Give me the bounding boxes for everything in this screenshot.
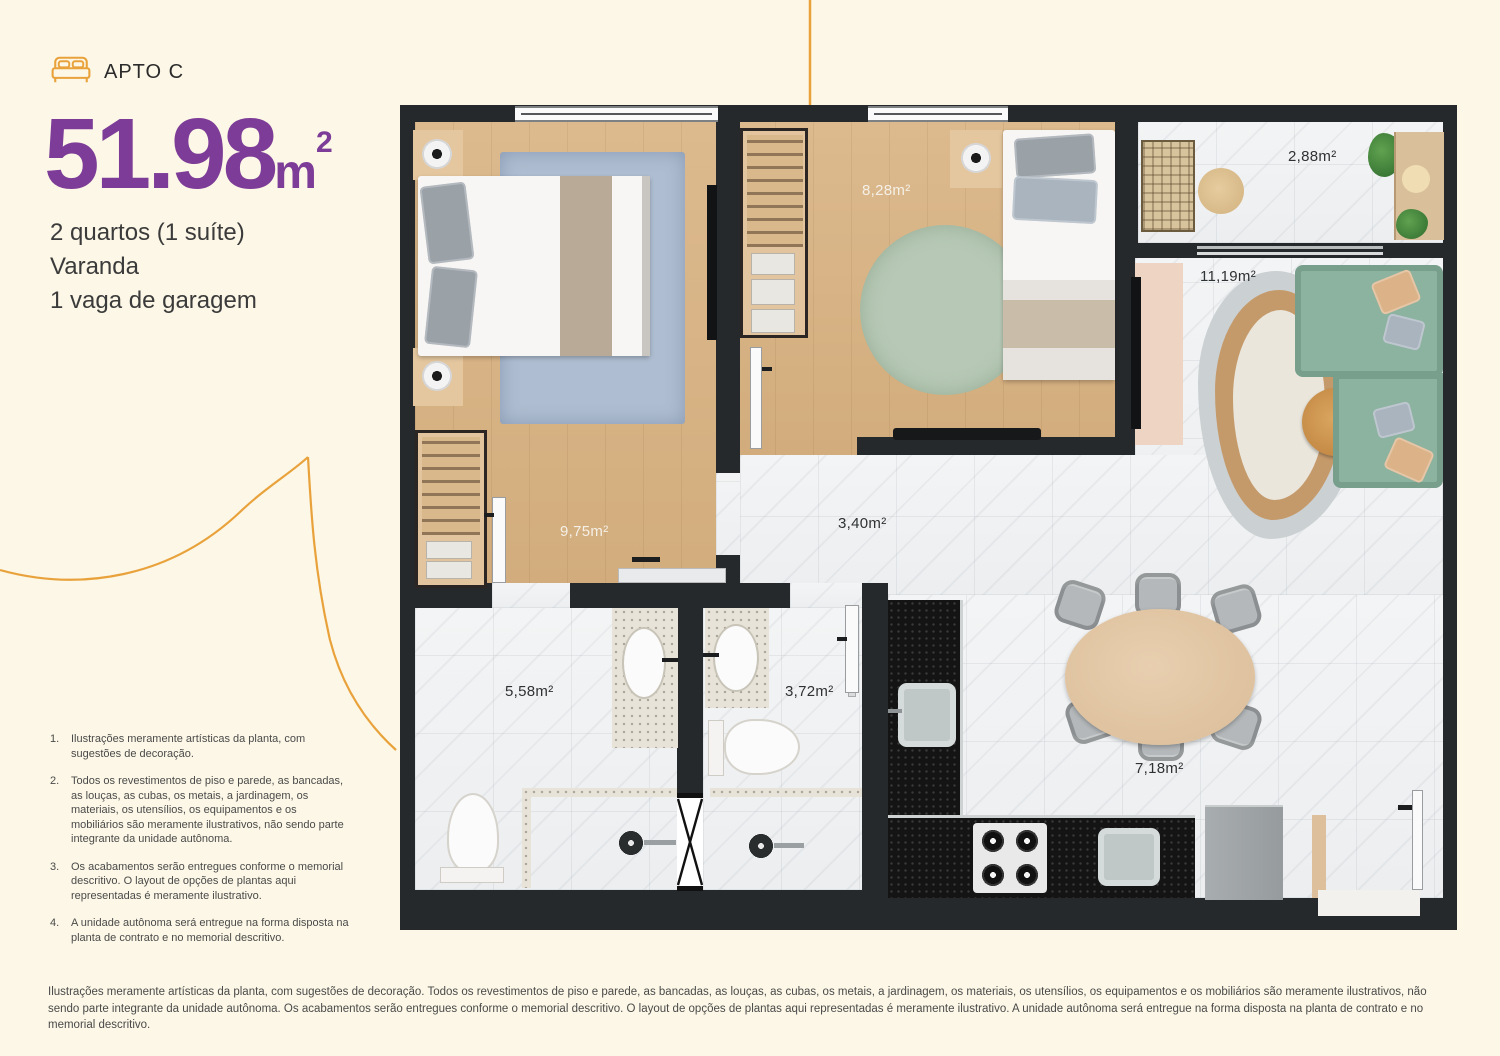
burner: [1015, 829, 1039, 853]
shower-arm: [774, 843, 804, 848]
wall-between-baths: [677, 583, 703, 793]
feature-list: 2 quartos (1 suíte) Varanda 1 vaga de ga…: [50, 216, 257, 318]
burner: [981, 829, 1005, 853]
footnote-item: 2. Todos os revestimentos de piso e pare…: [50, 774, 350, 847]
feature-balcony: Varanda: [50, 250, 257, 284]
cabinet-strip: [1312, 815, 1326, 898]
ventilation-shaft: [677, 793, 703, 891]
table-bowl: [1402, 165, 1430, 193]
bedroom2-closet: [740, 128, 808, 338]
shower-border: [710, 788, 862, 797]
folded-linen: [426, 561, 472, 579]
apartment-header: APTO C: [50, 54, 184, 91]
sliding-door-track: [1197, 246, 1383, 249]
lamp: [960, 142, 992, 174]
faucet: [888, 709, 902, 713]
cooktop: [973, 823, 1047, 893]
suite-nightstand: [413, 348, 463, 406]
suite-nightstand: [413, 130, 463, 180]
legal-disclaimer: Ilustrações meramente artísticas da plan…: [48, 984, 1458, 1034]
pillow: [419, 181, 474, 264]
room-label-bath2: 3,72m²: [785, 683, 834, 700]
wall-balcony-left: [1135, 243, 1197, 258]
bedroom2-door: [750, 347, 762, 449]
room-label-hall: 3,40m²: [838, 515, 887, 532]
footnote-item: 1. Ilustrações meramente artísticas da p…: [50, 732, 350, 761]
fridge: [1205, 805, 1283, 900]
folded-linen: [751, 279, 795, 305]
folded-linen: [751, 253, 795, 275]
footnote-item: 4. A unidade autônoma será entregue na f…: [50, 916, 350, 945]
lamp: [421, 360, 453, 392]
bath-suite-sink: [622, 627, 666, 699]
living-tv: [1131, 277, 1141, 429]
bed-runner: [560, 176, 612, 356]
hanging-clothes: [422, 437, 480, 535]
room-label-balcony: 2,88m²: [1288, 148, 1337, 165]
wall-balcony-right: [1383, 243, 1443, 258]
shower-arm: [644, 840, 676, 845]
area-headline: 51.98m2: [44, 104, 333, 204]
bath2-sink: [713, 624, 759, 692]
burner: [1015, 863, 1039, 887]
lamp: [421, 138, 453, 170]
burner: [981, 863, 1005, 887]
kitchen-sink-2: [1098, 828, 1160, 886]
toilet: [447, 793, 499, 873]
suite-bed: [418, 176, 650, 356]
suite-wardrobe: [415, 430, 487, 588]
kitchen-sink: [898, 683, 956, 747]
bedroom2-bed: [1003, 130, 1115, 380]
suite-window: [515, 106, 718, 122]
area-unit: m: [274, 146, 316, 199]
bedroom2-tv: [893, 428, 1041, 440]
dining-table: [1065, 609, 1255, 745]
bath-suite-door-threshold: [492, 583, 570, 608]
footnote-list: 1. Ilustrações meramente artísticas da p…: [50, 732, 350, 958]
door-handle: [837, 637, 847, 641]
balcony-pouf: [1198, 168, 1244, 214]
suite-vanity-counter: [618, 568, 726, 583]
shower-head: [748, 833, 774, 859]
toilet-tank: [440, 867, 504, 883]
tv-console: [1135, 263, 1183, 445]
bed-runner: [1003, 300, 1115, 348]
bed-icon: [50, 54, 92, 91]
bath2-door: [845, 605, 859, 693]
faucet: [632, 557, 660, 562]
pillow: [1012, 176, 1098, 224]
bath-suite-door: [492, 497, 506, 583]
floorplan-page: APTO C 51.98m2 2 quartos (1 suíte) Varan…: [0, 0, 1500, 1056]
suite-tv: [707, 185, 717, 340]
suite-door-threshold: [716, 473, 740, 560]
room-label-kitchen: 7,18m²: [1135, 760, 1184, 777]
faucet: [703, 653, 719, 657]
floor-plan: 9,75m² 8,28m² 2,88m²: [400, 105, 1457, 930]
room-label-bath-suite: 5,58m²: [505, 683, 554, 700]
room-label-living: 11,19m²: [1200, 268, 1256, 285]
room-label-suite: 9,75m²: [560, 523, 609, 540]
entrance-door: [1412, 790, 1423, 890]
room-label-bedroom2: 8,28m²: [862, 182, 911, 199]
wall-bath2-kitchen: [862, 583, 888, 898]
bed-foot: [642, 176, 650, 356]
pillow: [424, 266, 478, 348]
door-handle: [762, 367, 772, 371]
folded-linen: [751, 309, 795, 333]
balcony-bench: [1141, 140, 1195, 232]
door-handle: [484, 513, 494, 517]
wall-suite-bedroom2: [716, 105, 740, 473]
entrance-opening: [1318, 890, 1420, 916]
area-superscript: 2: [316, 126, 333, 159]
shower-border: [522, 788, 531, 888]
folded-linen: [426, 541, 472, 559]
area-value: 51.98: [44, 98, 274, 210]
sliding-door-track: [1197, 252, 1383, 255]
hanging-clothes: [747, 135, 803, 247]
feature-parking: 1 vaga de garagem: [50, 284, 257, 318]
door-handle: [1398, 805, 1412, 810]
toilet-tank: [708, 720, 724, 776]
pillow: [1014, 133, 1097, 178]
apartment-name: APTO C: [104, 61, 184, 84]
bedroom2-nightstand: [950, 130, 1002, 188]
feature-bedrooms: 2 quartos (1 suíte): [50, 216, 257, 250]
faucet: [662, 658, 678, 662]
shower-border: [522, 788, 677, 797]
bedroom2-window: [868, 106, 1008, 122]
shower-head: [618, 830, 644, 856]
footnote-item: 3. Os acabamentos serão entregues confor…: [50, 860, 350, 904]
